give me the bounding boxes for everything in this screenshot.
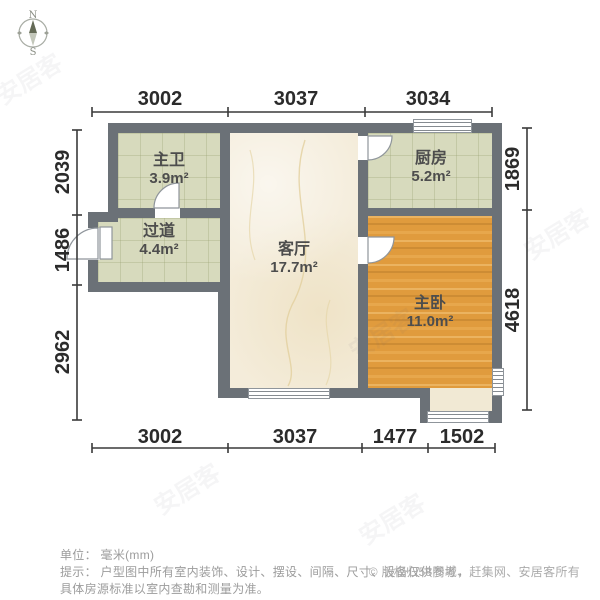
kitchen-window xyxy=(413,119,472,133)
wall-kitchen-bottom xyxy=(368,208,502,216)
room-label-living: 客厅 17.7m² xyxy=(270,241,318,277)
room-label-bedroom: 主卧 11.0m² xyxy=(407,295,454,331)
living-room-window xyxy=(248,388,330,399)
bay-window xyxy=(427,411,489,423)
bedroom-door-gap xyxy=(358,237,368,264)
wall-hallway-bottom xyxy=(88,282,230,292)
kitchen-area: 5.2m² xyxy=(411,168,450,185)
living-name: 客厅 xyxy=(270,241,318,259)
room-label-kitchen: 厨房 5.2m² xyxy=(411,150,450,186)
dim-top-3: 3034 xyxy=(378,88,478,110)
bedroom-area: 11.0m² xyxy=(407,313,454,330)
bathroom-area: 3.9m² xyxy=(149,170,188,187)
dim-left-3: 2962 xyxy=(52,302,74,402)
bedroom-name: 主卧 xyxy=(407,295,454,313)
dim-bottom-2: 3037 xyxy=(245,426,345,448)
hallway-name: 过道 xyxy=(139,223,178,241)
dim-right-2: 4618 xyxy=(502,260,524,360)
compass-south-label: S xyxy=(30,47,37,58)
floorplan-canvas: 安居客 安居客 安居客 安居客 安居客 N S xyxy=(0,0,600,600)
copyright-note: © 版权归58同城、赶集网、安居客所有 xyxy=(369,563,580,580)
room-label-bathroom: 主卫 3.9m² xyxy=(149,152,188,188)
watermark: 安居客 xyxy=(516,199,596,267)
watermark: 安居客 xyxy=(351,484,431,552)
dim-right-1: 1869 xyxy=(502,119,524,219)
wall-living-right xyxy=(358,133,368,398)
hallway-area: 4.4m² xyxy=(139,241,178,258)
bathroom-door-gap xyxy=(155,208,180,218)
room-label-hallway: 过道 4.4m² xyxy=(139,223,178,259)
kitchen-door-gap xyxy=(358,136,368,160)
dim-bottom-4: 1502 xyxy=(412,426,512,448)
bay-window-floor xyxy=(430,388,492,413)
bathroom-name: 主卫 xyxy=(149,152,188,170)
dim-left-2: 1486 xyxy=(52,200,74,300)
wall-living-left-lower xyxy=(218,282,230,398)
right-wall-vent-window xyxy=(492,368,504,396)
tip-note-line2: 具体房源标准以室内查勘和测量为准。 xyxy=(60,580,269,597)
dim-bottom-1: 3002 xyxy=(110,426,210,448)
dim-top-2: 3037 xyxy=(246,88,346,110)
unit-note: 单位： 毫米(mm) xyxy=(60,546,154,563)
dim-top-1: 3002 xyxy=(110,88,210,110)
wall-bay-stub-right xyxy=(487,411,502,423)
watermark: 安居客 xyxy=(146,454,226,522)
entry-door-gap xyxy=(86,228,100,260)
compass-icon: N S xyxy=(10,6,56,58)
living-area: 17.7m² xyxy=(270,259,318,276)
kitchen-name: 厨房 xyxy=(411,150,450,168)
compass-north-label: N xyxy=(29,10,38,21)
